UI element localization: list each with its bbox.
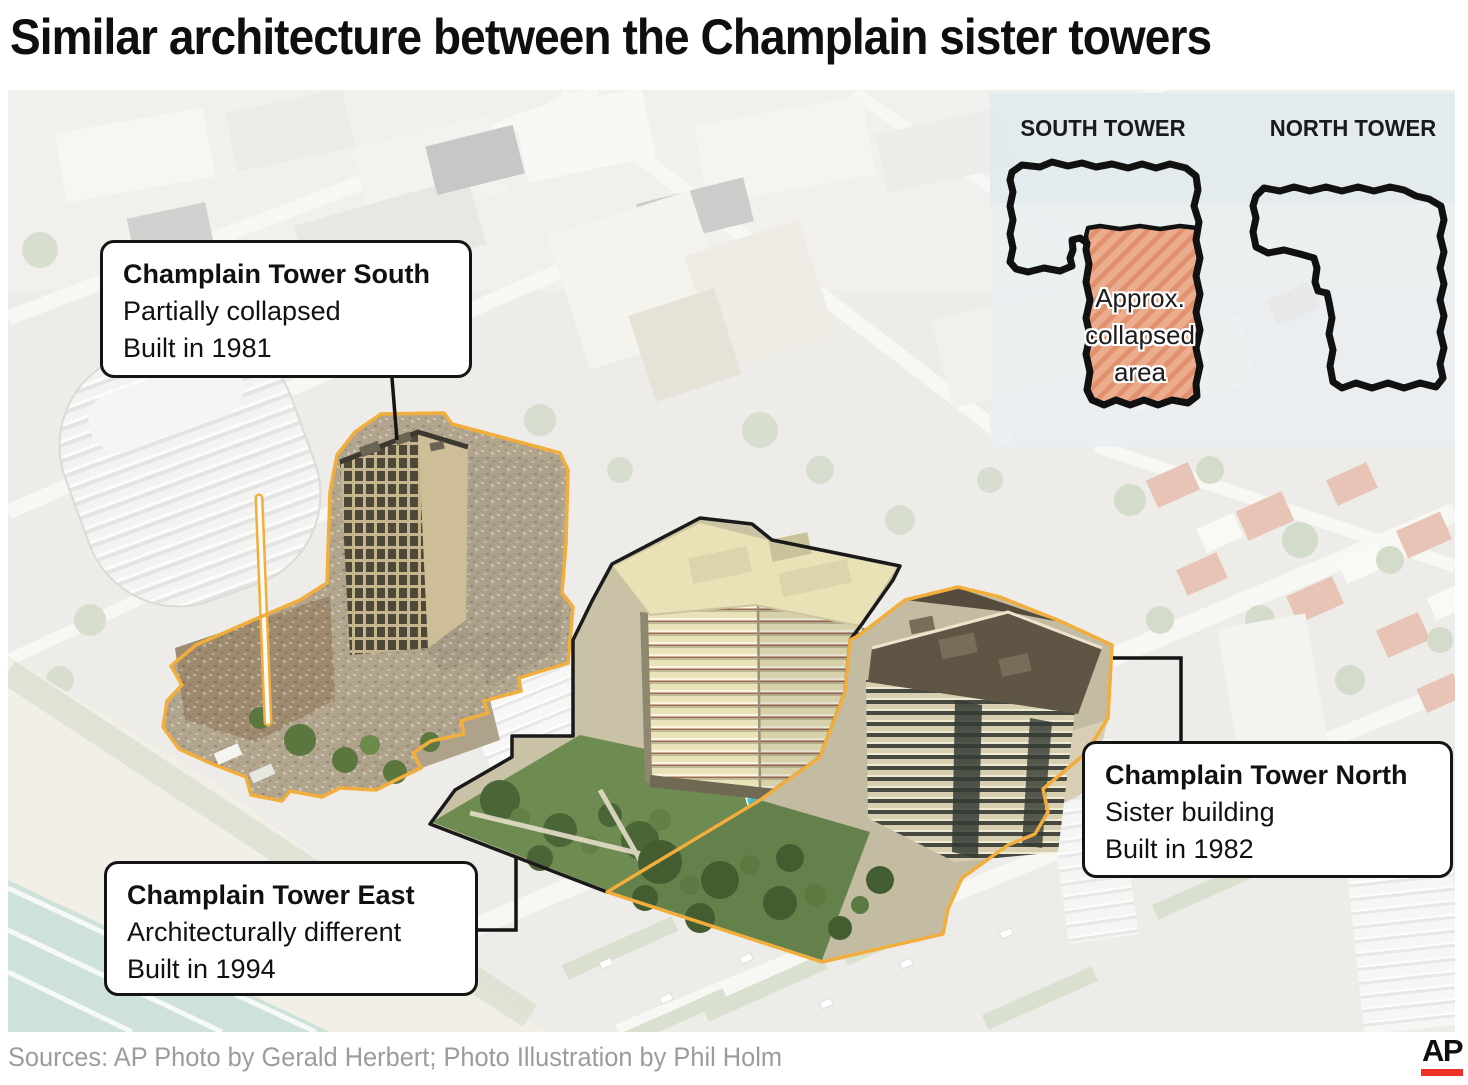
ap-logo-text: AP [1421,1035,1463,1067]
callout-north-detail: Sister building [1105,794,1430,831]
collapsed-area-label: Approx. collapsed area [1068,280,1212,391]
callout-north-tower: Champlain Tower North Sister building Bu… [1082,741,1453,878]
callout-south-detail: Partially collapsed [123,293,449,330]
south-tower-building [340,432,468,655]
infographic: Similar architecture between the Champla… [0,0,1468,1085]
footprint-inset-panel [990,93,1455,447]
callout-south-tower: Champlain Tower South Partially collapse… [100,240,472,378]
ap-logo: AP [1421,1035,1463,1076]
callout-south-title: Champlain Tower South [123,256,449,293]
callout-south-built: Built in 1981 [123,330,449,367]
callout-east-built: Built in 1994 [127,951,455,988]
inset-south-tower-label: SOUTH TOWER [1012,115,1194,142]
page-title: Similar architecture between the Champla… [10,8,1211,66]
callout-north-title: Champlain Tower North [1105,757,1430,794]
callout-east-title: Champlain Tower East [127,877,455,914]
callout-east-detail: Architecturally different [127,914,455,951]
source-credit-line: Sources: AP Photo by Gerald Herbert; Pho… [8,1042,782,1073]
ap-logo-red-bar [1421,1069,1463,1076]
callout-north-built: Built in 1982 [1105,831,1430,868]
callout-east-tower: Champlain Tower East Architecturally dif… [104,861,478,996]
inset-north-tower-label: NORTH TOWER [1262,115,1444,142]
